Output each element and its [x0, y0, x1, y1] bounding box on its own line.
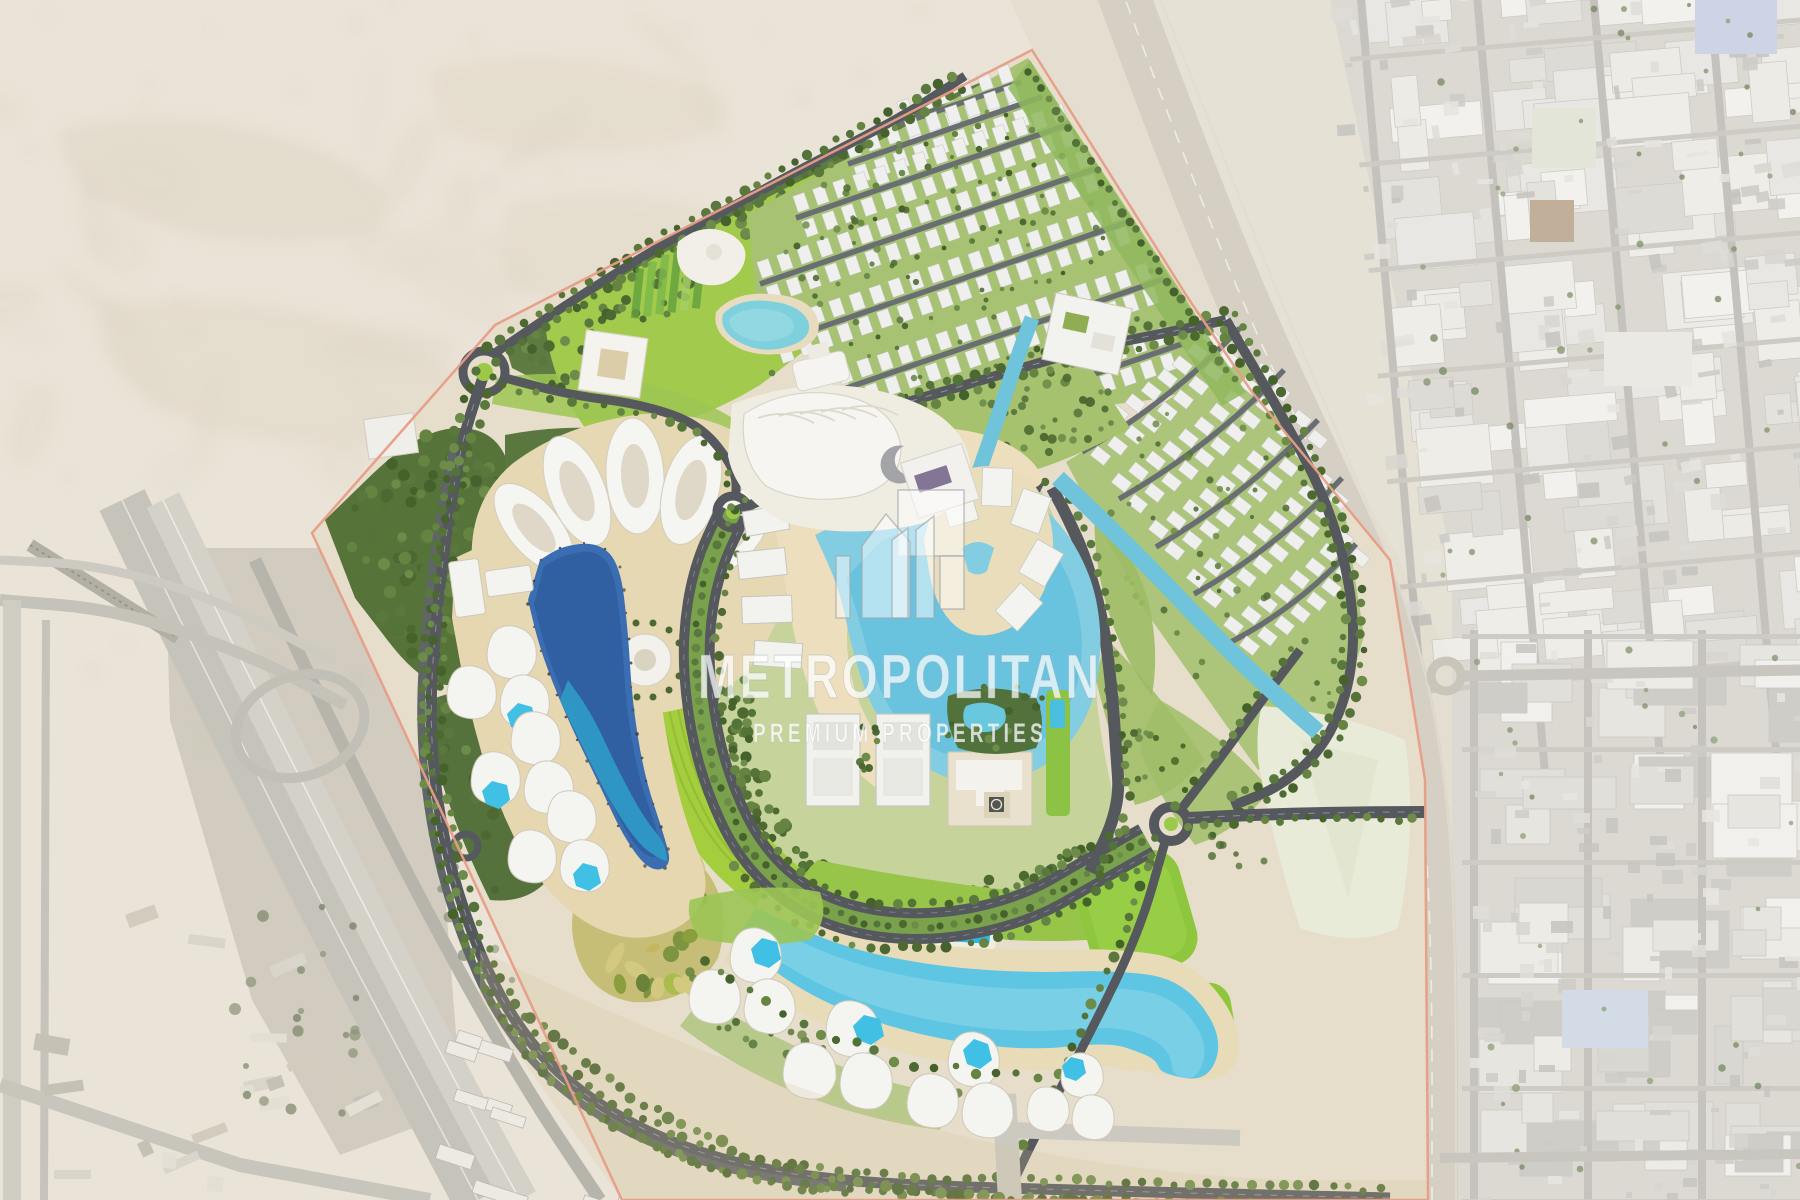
svg-text:PREMIUM PROPERTIES: PREMIUM PROPERTIES	[753, 718, 1047, 748]
svg-text:METROPOLITAN: METROPOLITAN	[698, 643, 1102, 712]
